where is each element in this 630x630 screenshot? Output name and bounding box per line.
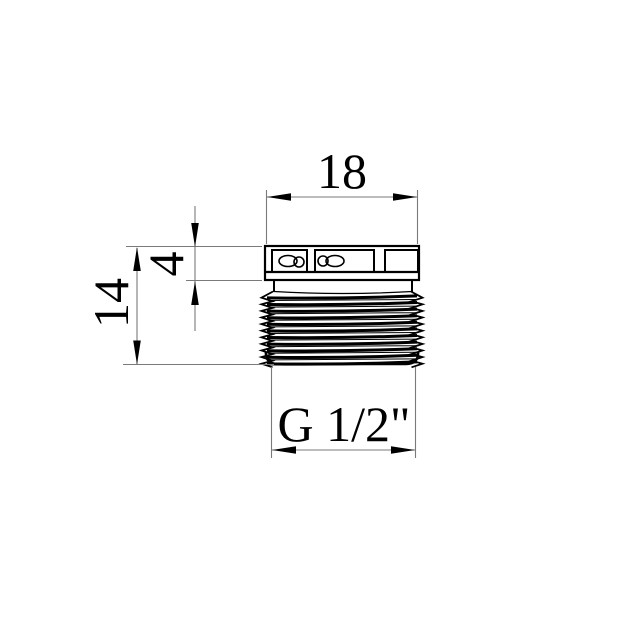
thread-body (262, 292, 423, 368)
dim-label-width: 18 (317, 143, 367, 199)
thread-line (268, 339, 416, 340)
thread-line (267, 303, 417, 305)
arrowhead-down (191, 223, 199, 247)
thread-line (268, 333, 416, 334)
thread-line (268, 359, 416, 360)
arrowhead-up (191, 281, 199, 305)
thread-line (268, 306, 416, 307)
arrowhead-down (133, 341, 141, 365)
dim-label-head-height: 4 (138, 252, 194, 277)
thread-line (267, 296, 417, 298)
thread-line (267, 322, 417, 324)
hex-facet-right (385, 250, 418, 272)
hex-head (265, 246, 419, 280)
thread-line (268, 346, 416, 347)
arrowhead-left (267, 193, 291, 201)
hex-facet-left (272, 250, 307, 272)
thread-line (267, 349, 417, 351)
dim-thread-size: G 1/2" (272, 367, 416, 458)
dim-top-width: 18 (267, 143, 418, 244)
thread-line (274, 292, 412, 294)
dim-label-overall-height: 14 (83, 278, 139, 328)
technical-drawing-page: 18 4 14 G 1/2" (0, 0, 630, 630)
thread-line (268, 352, 416, 353)
thread-line (268, 326, 416, 327)
thread-line (267, 309, 417, 311)
thread-line (267, 336, 417, 338)
neck (274, 280, 412, 292)
thread-line (267, 316, 417, 318)
threaded-plug-drawing: 18 4 14 G 1/2" (0, 0, 630, 630)
chamfer-curves (279, 256, 344, 268)
head-outline (265, 246, 419, 280)
thread-line (268, 313, 416, 314)
thread-line (268, 319, 416, 320)
dim-label-thread: G 1/2" (278, 396, 411, 452)
thread-line (268, 300, 416, 301)
thread-line (267, 342, 417, 344)
thread-line (267, 329, 417, 331)
dim-head-height: 4 (126, 206, 262, 331)
thread-line (267, 355, 417, 357)
arrowhead-right (393, 193, 417, 201)
